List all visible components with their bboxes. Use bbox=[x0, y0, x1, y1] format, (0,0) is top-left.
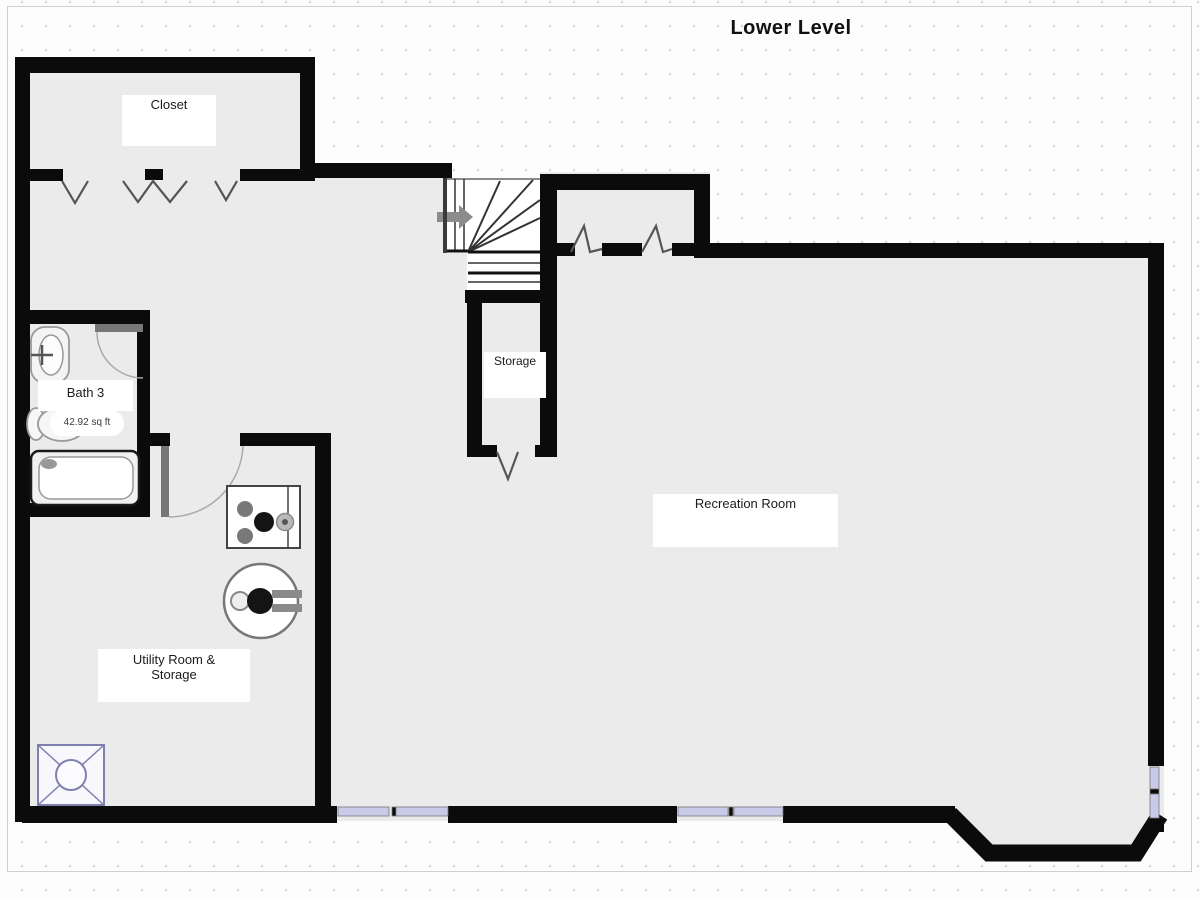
page-title: Lower Level bbox=[641, 17, 941, 40]
bath3-label: Bath 3 bbox=[67, 385, 105, 400]
window-icon bbox=[338, 807, 389, 816]
window-icon bbox=[396, 807, 448, 816]
recreation-label: Recreation Room bbox=[695, 496, 796, 511]
room-label-utility: Utility Room & Storage bbox=[98, 649, 250, 702]
room-label-bath3: Bath 3 bbox=[38, 380, 133, 411]
window-icon bbox=[1150, 767, 1159, 789]
room-label-recreation: Recreation Room bbox=[653, 494, 838, 547]
window-icon bbox=[734, 807, 783, 816]
window-icon bbox=[678, 807, 728, 816]
room-label-closet: Closet bbox=[122, 95, 216, 146]
closet-label: Closet bbox=[151, 97, 188, 112]
window-icon bbox=[1150, 794, 1159, 818]
bath3-area-value: 42.92 sq ft bbox=[64, 417, 111, 428]
utility-label-line1: Utility Room & bbox=[98, 653, 250, 668]
utility-label-line2: Storage bbox=[98, 668, 250, 683]
floor-plan-page: Lower Level Closet Bath 3 42.92 sq ft St… bbox=[0, 0, 1200, 900]
bath3-area-badge: 42.92 sq ft bbox=[50, 411, 124, 436]
storage-label: Storage bbox=[494, 354, 536, 368]
bathtub-icon bbox=[31, 451, 139, 505]
room-label-storage: Storage bbox=[484, 352, 546, 398]
furnace-icon bbox=[227, 486, 300, 548]
sink-icon bbox=[31, 327, 69, 383]
floor-drain-icon bbox=[38, 745, 104, 805]
